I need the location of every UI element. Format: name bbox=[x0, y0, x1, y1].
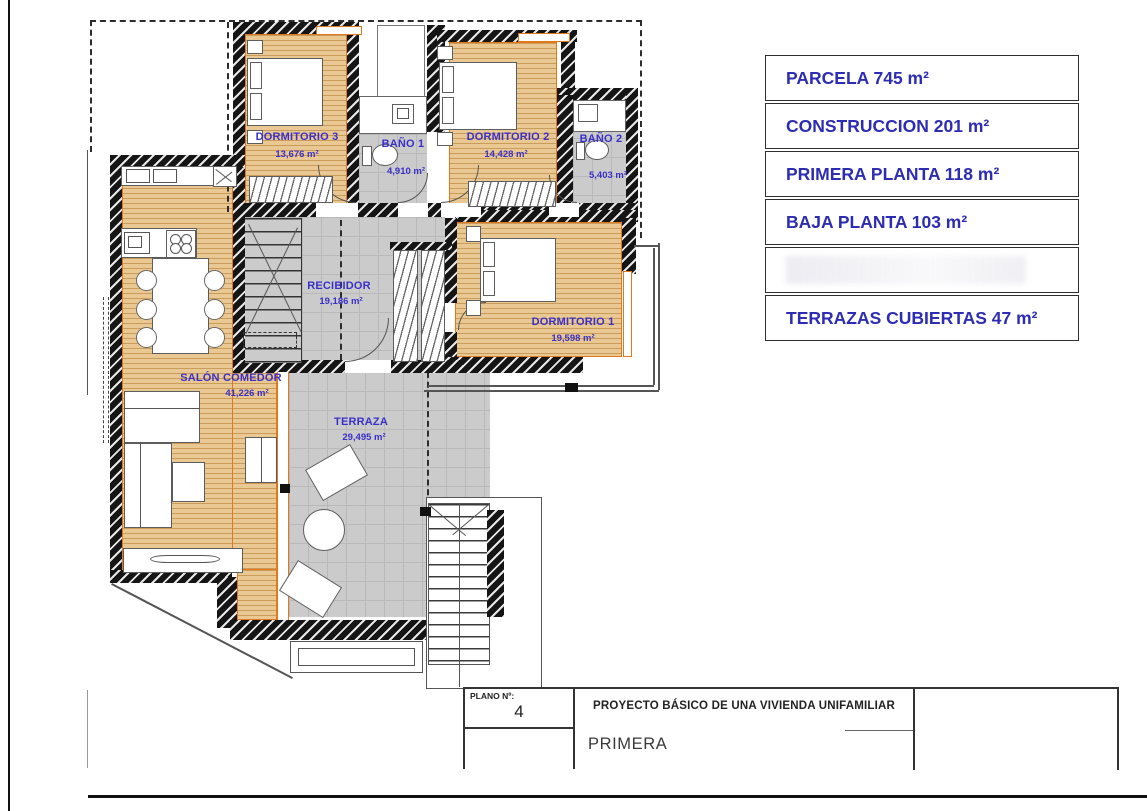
window bbox=[316, 26, 362, 35]
room-label-dormitorio3: DORMITORIO 3 bbox=[256, 131, 339, 143]
room-label-salon: SALÓN COMEDOR bbox=[180, 372, 282, 384]
toilet-icon bbox=[362, 146, 372, 166]
title-block-line bbox=[573, 687, 575, 769]
lower-terrace-outline bbox=[103, 297, 104, 443]
room-area-terraza: 29,495 m² bbox=[342, 432, 385, 443]
chair bbox=[136, 299, 157, 320]
appliance bbox=[126, 169, 150, 183]
nightstand bbox=[437, 132, 453, 146]
skylight bbox=[377, 25, 425, 97]
sink-icon bbox=[578, 104, 598, 122]
wardrobe bbox=[393, 250, 418, 362]
wall bbox=[110, 155, 122, 583]
sofa bbox=[124, 391, 200, 443]
room-label-dormitorio1: DORMITORIO 1 bbox=[532, 316, 615, 328]
planter bbox=[298, 648, 415, 666]
title-block-line bbox=[463, 727, 575, 729]
table-row: PRIMERA PLANTA 118 m² bbox=[765, 151, 1079, 197]
side-table bbox=[261, 437, 262, 483]
roof-overhang-outline bbox=[90, 20, 92, 152]
nightstand bbox=[466, 226, 481, 242]
room-area-dormitorio3: 13,676 m² bbox=[275, 149, 318, 160]
room-label-recibidor: RECIBIDOR bbox=[307, 280, 371, 292]
title-block-line bbox=[463, 687, 1117, 689]
sofa bbox=[124, 443, 172, 528]
room-label-bano1: BAÑO 1 bbox=[382, 138, 425, 150]
chair bbox=[204, 299, 225, 320]
tv-icon bbox=[150, 555, 220, 563]
terrace-edge bbox=[634, 245, 659, 247]
column-marker bbox=[420, 507, 431, 516]
sink-icon bbox=[397, 108, 409, 119]
room-area-recibidor: 19,186 m² bbox=[319, 296, 362, 307]
sofa bbox=[124, 408, 200, 409]
roof-overhang-outline bbox=[90, 20, 642, 22]
terrace-edge bbox=[653, 248, 655, 385]
wardrobe bbox=[249, 176, 333, 203]
room-label-dormitorio2: DORMITORIO 2 bbox=[467, 131, 550, 143]
wall bbox=[455, 210, 638, 222]
terrace-edge bbox=[658, 243, 660, 390]
wall bbox=[445, 218, 457, 303]
pillow bbox=[250, 93, 262, 120]
sheet-bottom-border bbox=[88, 795, 1147, 798]
project-title: PROYECTO BÁSICO DE UNA VIVIENDA UNIFAMIL… bbox=[575, 700, 913, 712]
room-label-terraza: TERRAZA bbox=[334, 416, 388, 428]
wardrobe bbox=[421, 250, 445, 362]
table-row: TERRAZAS CUBIERTAS 47 m² bbox=[765, 295, 1079, 341]
stair-dashed-landing bbox=[243, 332, 297, 348]
room-salon-floor bbox=[237, 570, 277, 620]
sheet-name: PRIMERA bbox=[588, 735, 667, 754]
wall bbox=[626, 88, 638, 218]
room-area-salon: 41,226 m² bbox=[225, 388, 268, 399]
pillow bbox=[442, 66, 454, 93]
room-label-bano2: BAÑO 2 bbox=[580, 133, 623, 145]
column-marker bbox=[280, 484, 290, 493]
pillow bbox=[483, 242, 495, 267]
room-area-bano2: 5,403 m² bbox=[589, 170, 627, 181]
plano-number-value: 4 bbox=[463, 702, 575, 722]
room-area-bano1: 4,910 m² bbox=[387, 166, 425, 177]
pillow bbox=[250, 62, 262, 89]
round-table bbox=[303, 509, 345, 551]
table-row: CONSTRUCCION 201 m² bbox=[765, 103, 1079, 149]
title-block-line bbox=[1117, 687, 1119, 770]
area-summary-table: PARCELA 745 m² CONSTRUCCION 201 m² PRIME… bbox=[765, 55, 1061, 345]
title-block-line bbox=[913, 687, 915, 770]
title-block-line bbox=[463, 687, 465, 769]
chair bbox=[204, 327, 225, 348]
wall bbox=[233, 22, 245, 370]
door-opening bbox=[345, 360, 391, 373]
wall bbox=[230, 620, 426, 640]
wall bbox=[487, 510, 504, 617]
door-opening bbox=[316, 203, 358, 217]
title-block-line bbox=[845, 730, 913, 731]
terrace-edge-dashed bbox=[427, 372, 429, 505]
roof-overhang-outline bbox=[640, 20, 642, 238]
chair bbox=[204, 270, 225, 291]
lower-terrace-outline bbox=[108, 297, 109, 443]
pillow bbox=[442, 97, 454, 124]
sheet-left-border bbox=[8, 0, 10, 811]
terrace-edge bbox=[428, 385, 654, 387]
frame-line bbox=[87, 690, 88, 768]
plano-number-label: PLANO Nº: bbox=[470, 691, 514, 701]
nightstand bbox=[437, 46, 453, 60]
table-row: PARCELA 745 m² bbox=[765, 55, 1079, 101]
lower-terrace-outline bbox=[87, 150, 88, 395]
sink-icon bbox=[128, 236, 142, 248]
room-area-dormitorio2: 14,428 m² bbox=[484, 149, 527, 160]
appliance bbox=[153, 169, 177, 183]
erased-text-smudge bbox=[786, 256, 1026, 284]
nightstand bbox=[466, 300, 481, 316]
sofa bbox=[140, 443, 141, 528]
wardrobe bbox=[468, 181, 556, 207]
room-terraza-floor bbox=[427, 372, 490, 505]
floor-plan-sheet: DORMITORIO 3 13,676 m² BAÑO 1 4,910 m² D… bbox=[0, 0, 1147, 811]
dining-table bbox=[152, 258, 209, 354]
wall bbox=[390, 242, 452, 250]
table-row: BAJA PLANTA 103 m² bbox=[765, 199, 1079, 245]
pillow bbox=[483, 271, 495, 296]
terrace-edge bbox=[424, 390, 659, 392]
chair bbox=[136, 270, 157, 291]
chair bbox=[136, 327, 157, 348]
nightstand bbox=[247, 40, 263, 54]
door-opening bbox=[398, 203, 428, 217]
room-area-dormitorio1: 19,598 m² bbox=[551, 333, 594, 344]
column-marker bbox=[565, 383, 578, 392]
window bbox=[518, 33, 570, 42]
stove-icon bbox=[166, 230, 196, 258]
coffee-table bbox=[172, 462, 205, 502]
window bbox=[623, 271, 632, 357]
table-row bbox=[765, 247, 1079, 293]
